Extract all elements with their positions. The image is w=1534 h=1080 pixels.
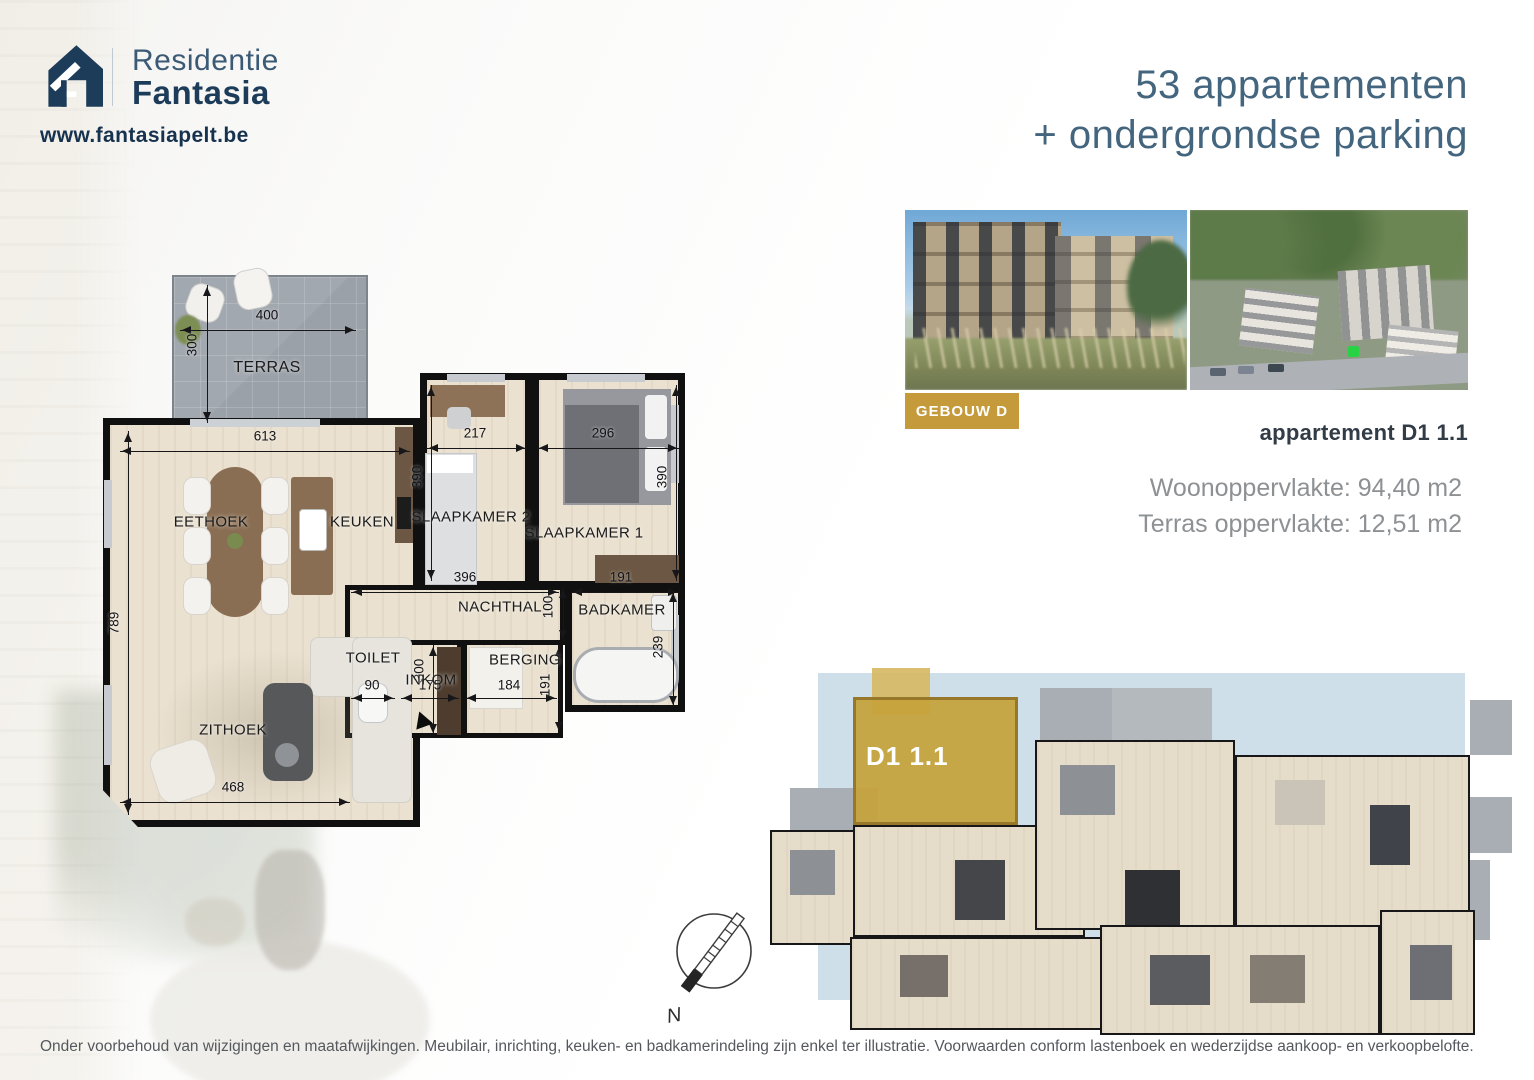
brand-divider <box>112 48 113 106</box>
dim-badkamer-width: 191 <box>610 570 633 585</box>
dim-nachthal-width: 396 <box>454 570 477 585</box>
chair <box>261 477 289 515</box>
chair <box>183 527 211 565</box>
overview-terrace <box>1040 688 1112 740</box>
apartment-title: appartement D1 1.1 <box>1260 420 1468 446</box>
pillow <box>427 455 473 473</box>
overview-unit-label: D1 1.1 <box>866 741 949 772</box>
dim-terras-width: 400 <box>256 308 279 323</box>
living-area-value: Woonoppervlakte: 94,40 m2 <box>1138 470 1462 506</box>
dim-line <box>351 592 559 593</box>
disclaimer-text: Onder voorbehoud van wijzigingen en maat… <box>40 1038 1510 1056</box>
window <box>447 374 505 382</box>
page-title-line1: 53 appartementen <box>1033 60 1468 110</box>
aerial-car <box>1210 368 1226 376</box>
overview-detail <box>790 850 835 895</box>
overview-detail <box>955 860 1005 920</box>
window <box>567 374 645 382</box>
overview-detail <box>1410 945 1452 1000</box>
label-keuken: KEUKEN <box>330 514 394 531</box>
dim-line <box>427 448 527 449</box>
overview-plan: D1 1.1 <box>770 655 1514 1045</box>
aerial-location-marker <box>1348 346 1359 357</box>
label-nachthal: NACHTHAL <box>458 599 542 616</box>
label-inkom: INKOM <box>405 672 456 689</box>
aerial-road <box>1190 353 1468 390</box>
dim-slk2-width: 217 <box>464 426 487 441</box>
overview-terrace <box>1468 797 1512 853</box>
dim-living-width: 613 <box>254 429 277 444</box>
dim-berging-depth: 191 <box>538 674 553 697</box>
area-info: Woonoppervlakte: 94,40 m2 Terras oppervl… <box>1138 470 1462 542</box>
brand-line2: Fantasia <box>132 74 279 112</box>
aerial-car <box>1268 364 1284 372</box>
dresser <box>595 555 679 583</box>
dim-line <box>431 385 432 581</box>
building-badge: GEBOUW D <box>905 393 1019 429</box>
chair <box>183 477 211 515</box>
dim-slk1-width: 296 <box>592 426 615 441</box>
dim-badkamer-depth: 239 <box>651 636 666 659</box>
chair <box>261 577 289 615</box>
aerial-photo <box>1190 210 1468 390</box>
building-photo <box>905 210 1187 390</box>
photo-reeds <box>915 328 1185 368</box>
overview-detail <box>1150 955 1210 1005</box>
dim-toilet-width: 90 <box>364 678 379 693</box>
label-badkamer: BADKAMER <box>578 602 665 619</box>
label-toilet: TOILET <box>346 650 401 667</box>
compass-north-icon: N <box>660 893 770 1031</box>
overview-unit-block <box>1235 755 1470 930</box>
dim-line <box>673 591 674 707</box>
overview-detail <box>1060 765 1115 815</box>
label-zithoek: ZITHOEK <box>199 722 267 739</box>
dim-living-depth: 789 <box>107 612 122 635</box>
overview-detail <box>1275 780 1325 825</box>
chair <box>261 527 289 565</box>
label-slaapkamer1: SLAAPKAMER 1 <box>524 525 643 542</box>
brand-line1: Residentie <box>132 44 279 78</box>
chair <box>183 577 211 615</box>
brand-house-icon <box>40 40 110 112</box>
overview-terrace <box>1112 688 1212 740</box>
photo-tree <box>1127 240 1187 335</box>
dim-line <box>120 802 350 803</box>
label-eethoek: EETHOEK <box>174 514 248 531</box>
dim-slk1-depth: 390 <box>655 466 670 489</box>
aerial-building <box>1239 288 1320 355</box>
overview-unit-block <box>850 937 1105 1030</box>
website-link[interactable]: www.fantasiapelt.be <box>40 124 249 148</box>
brand-name: Residentie Fantasia <box>132 44 279 112</box>
dim-line <box>128 431 129 815</box>
dim-berging-width: 184 <box>498 678 521 693</box>
background-vase <box>255 850 325 970</box>
dim-line <box>120 451 410 452</box>
label-terras: TERRAS <box>233 359 300 377</box>
overview-detail <box>1250 955 1305 1003</box>
table-plant <box>227 533 243 549</box>
cooktop <box>397 497 411 529</box>
overview-detail <box>900 955 948 997</box>
overview-detail <box>1370 805 1410 865</box>
pillow <box>645 395 667 439</box>
label-berging: BERGING <box>489 652 561 669</box>
dim-line <box>571 592 679 593</box>
dim-line <box>676 385 677 581</box>
dim-line <box>563 587 564 641</box>
dim-zithoek-width: 468 <box>222 780 245 795</box>
dim-line <box>401 698 459 699</box>
page-title-line2: + ondergrondse parking <box>1033 110 1468 160</box>
floorplan: 400 300 613 789 217 296 390 390 396 100 … <box>95 255 695 835</box>
decor-bowl <box>275 743 299 767</box>
dim-line <box>465 698 557 699</box>
overview-unit-block <box>1100 925 1380 1035</box>
blanket <box>565 405 639 503</box>
overview-terrace <box>1470 700 1512 755</box>
label-slaapkamer2: SLAAPKAMER 2 <box>411 509 530 526</box>
kitchen-sink <box>299 509 327 551</box>
compass-label: N <box>665 1004 684 1028</box>
dim-line <box>537 448 679 449</box>
page-title: 53 appartementen + ondergrondse parking <box>1033 60 1468 160</box>
brochure-page: Residentie Fantasia www.fantasiapelt.be … <box>0 0 1534 1080</box>
dim-nachthal-depth: 100 <box>541 596 556 619</box>
window <box>104 685 112 765</box>
background-pot <box>185 898 245 946</box>
dim-line <box>207 285 208 423</box>
dim-line <box>351 698 395 699</box>
window <box>104 480 112 548</box>
terrace-area-value: Terras oppervlakte: 12,51 m2 <box>1138 506 1462 542</box>
aerial-car <box>1238 366 1254 374</box>
overview-detail <box>1125 870 1180 925</box>
dim-terras-depth: 300 <box>185 334 200 357</box>
dim-slk2-depth: 390 <box>410 466 425 489</box>
